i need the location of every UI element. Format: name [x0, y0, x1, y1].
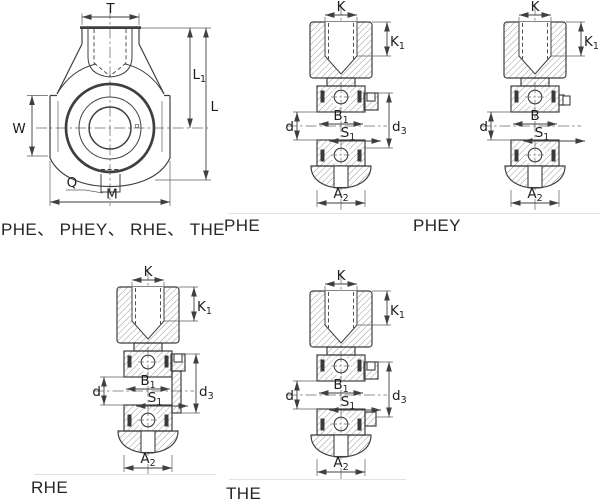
- dim-label-s1: S1: [148, 390, 163, 408]
- dim-label-l: L: [211, 99, 219, 115]
- dim-label-d3: d3: [199, 384, 214, 402]
- dim-label-w: W: [12, 121, 25, 137]
- dim-label-t: T: [105, 1, 115, 17]
- the-section-view: d3 B1 S1: [285, 268, 406, 481]
- phey-section-view: B S1: [479, 0, 598, 212]
- rhe-section-view: d3 B1 S1: [92, 264, 213, 477]
- dim-label-q: Q: [67, 175, 78, 191]
- dim-label-s1: S1: [341, 125, 356, 143]
- divider-bottom-middle: [229, 479, 406, 480]
- dim-label-l1: L1: [193, 67, 207, 85]
- dim-label-m: M: [106, 187, 118, 203]
- phe-section-view: d3 B1 S1: [285, 0, 406, 212]
- technical-drawing: K K1 d A2: [0, 0, 600, 504]
- dim-label-d3: d3: [392, 388, 407, 406]
- caption-front-view: PHE、 PHEY、 RHE、 THE: [1, 215, 225, 240]
- caption-phey: PHEY: [413, 216, 461, 236]
- divider-bottom-left: [34, 474, 216, 475]
- dim-label-s1: S1: [341, 394, 356, 412]
- bearing-section: [285, 0, 404, 212]
- dim-label-d3: d3: [392, 119, 407, 137]
- bearing-section: [92, 264, 211, 477]
- dim-label-b: B: [530, 108, 539, 124]
- divider-top-right: [228, 213, 600, 214]
- caption-rhe: RHE: [31, 478, 68, 498]
- drawing-stage: K K1 d A2: [0, 0, 600, 504]
- caption-the: THE: [226, 484, 261, 504]
- front-view: T W L1 L M Q: [12, 1, 218, 206]
- dim-label-s1: S1: [535, 125, 550, 143]
- caption-phe: PHE: [224, 216, 260, 236]
- bearing-section: [285, 268, 404, 481]
- bearing-section: [479, 0, 598, 212]
